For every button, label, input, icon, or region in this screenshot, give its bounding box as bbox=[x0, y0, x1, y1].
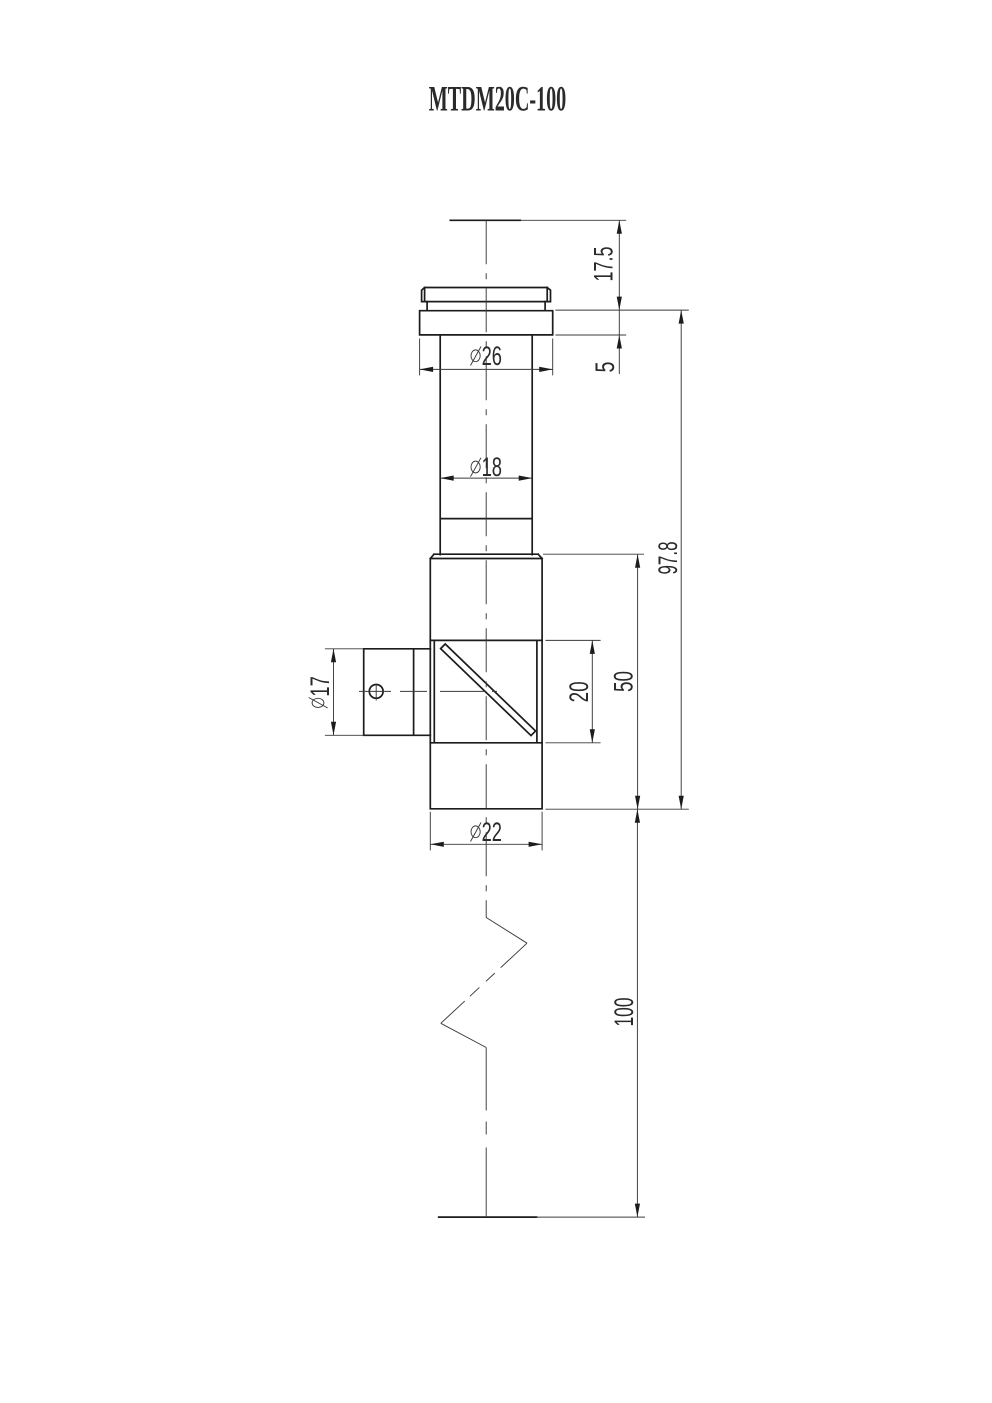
svg-text:20: 20 bbox=[564, 681, 594, 702]
svg-text:97.8: 97.8 bbox=[653, 542, 683, 575]
svg-text:100: 100 bbox=[609, 998, 639, 1027]
svg-text:18: 18 bbox=[482, 452, 502, 482]
svg-text:50: 50 bbox=[608, 671, 638, 692]
svg-text:MTDM20C-100: MTDM20C-100 bbox=[429, 79, 567, 119]
svg-text:26: 26 bbox=[482, 341, 502, 371]
svg-text:17: 17 bbox=[305, 676, 335, 696]
svg-text:22: 22 bbox=[482, 817, 502, 847]
svg-text:17.5: 17.5 bbox=[589, 247, 619, 282]
svg-text:5: 5 bbox=[590, 362, 620, 373]
